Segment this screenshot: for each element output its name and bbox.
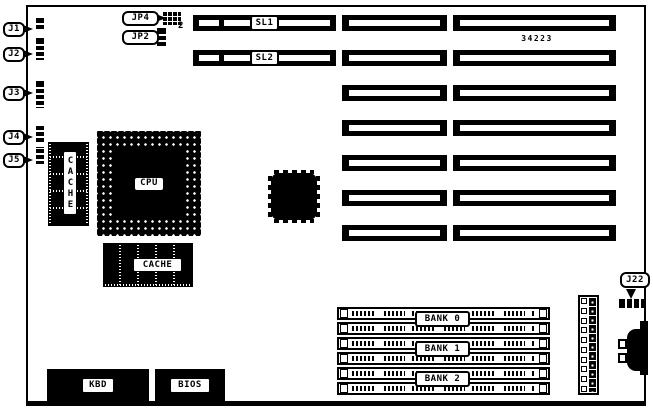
connector-j1-label: J1 bbox=[3, 22, 25, 37]
slot-row-1: SL1 bbox=[0, 15, 653, 31]
slot-sl1-label: SL1 bbox=[250, 15, 279, 31]
expansion-slot-segment bbox=[342, 155, 447, 171]
cpu-socket: CPU bbox=[97, 131, 201, 236]
expansion-slot-segment bbox=[453, 85, 616, 101]
expansion-slot-segment bbox=[342, 50, 447, 66]
cache-horizontal-label: CACHE bbox=[133, 258, 182, 272]
keyboard-din-step bbox=[640, 367, 648, 375]
qfp-chip bbox=[268, 170, 320, 223]
bank-0-label: BANK 0 bbox=[415, 311, 470, 327]
cache-bank-vertical: CACHE bbox=[48, 142, 89, 226]
jumper-jp4-label: JP4 bbox=[122, 11, 159, 26]
slot-sl2-label: SL2 bbox=[250, 50, 279, 66]
expansion-slot-segment bbox=[342, 15, 447, 31]
kbd-chip: KBD bbox=[47, 369, 149, 402]
expansion-slot-segment bbox=[342, 85, 447, 101]
jumper-jp2-label: JP2 bbox=[122, 30, 159, 45]
cpu-label: CPU bbox=[133, 176, 165, 192]
expansion-slot-segment bbox=[453, 120, 616, 136]
bios-chip: BIOS bbox=[155, 369, 225, 402]
bios-label: BIOS bbox=[170, 378, 210, 393]
slot-sl1: SL1 bbox=[193, 15, 336, 31]
expansion-slot-segment bbox=[453, 225, 616, 241]
keyboard-din-step bbox=[640, 321, 648, 333]
expansion-slot-segment bbox=[453, 190, 616, 206]
connector-j2-label: J2 bbox=[3, 47, 25, 62]
power-connector bbox=[578, 295, 599, 395]
connector-j22-label: J22 bbox=[620, 272, 650, 288]
expansion-slot-segment bbox=[342, 190, 447, 206]
connector-j4-label: J4 bbox=[3, 130, 25, 145]
part-number: 34223 bbox=[514, 34, 560, 43]
connector-j5-label: J5 bbox=[3, 153, 25, 168]
slot-row-2: SL2 bbox=[0, 50, 653, 66]
bank-2-label: BANK 2 bbox=[415, 371, 470, 387]
bank-1-label: BANK 1 bbox=[415, 341, 470, 357]
j22-pointer-icon bbox=[626, 289, 636, 299]
kbd-label: KBD bbox=[82, 378, 114, 393]
expansion-slot-segment bbox=[342, 225, 447, 241]
cache-vertical-label: CACHE bbox=[63, 151, 77, 215]
slot-sl2: SL2 bbox=[193, 50, 336, 66]
expansion-slot-segment bbox=[342, 120, 447, 136]
connector-j22-pins bbox=[617, 299, 646, 308]
cpu-core: CPU bbox=[116, 150, 182, 217]
power-connector-pins bbox=[589, 298, 596, 392]
cache-bank-horizontal: CACHE bbox=[103, 243, 193, 287]
connector-j3-label: J3 bbox=[3, 86, 25, 101]
expansion-slot-segment bbox=[453, 155, 616, 171]
motherboard-diagram: J1 J2 J3 J4 J5 JP4 2 JP2 SL1 SL2 bbox=[0, 0, 653, 416]
expansion-slot-segment bbox=[453, 50, 616, 66]
keyboard-din-tab bbox=[618, 339, 627, 349]
slot-row-3 bbox=[0, 85, 653, 101]
keyboard-din-connector bbox=[627, 329, 648, 371]
keyboard-din-tab bbox=[618, 353, 627, 363]
expansion-slot-segment bbox=[453, 15, 616, 31]
